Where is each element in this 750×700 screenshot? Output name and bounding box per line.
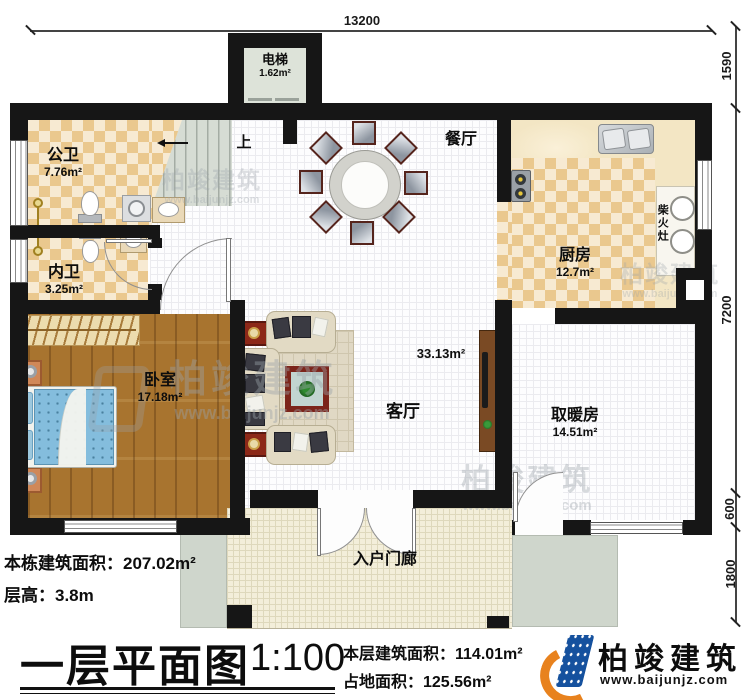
wood-stove-burner [670, 229, 695, 254]
title-underline [20, 687, 335, 690]
wall [230, 300, 245, 535]
room-area: 17.18m² [120, 390, 200, 404]
room-name: 内卫 [31, 263, 97, 282]
sink-basin [158, 202, 179, 217]
window [64, 520, 177, 533]
sofa-cushion [244, 353, 266, 372]
dining-chair [299, 170, 323, 194]
side-table-lamp [248, 438, 260, 450]
sink-bowl [627, 128, 652, 151]
drawing-scale: 1:100 [250, 637, 345, 680]
entry-door-leaf [412, 508, 416, 556]
cabinet-plant [483, 420, 492, 429]
kitchen-floor-tiles [512, 158, 655, 308]
stairs-up-label: 上 [233, 134, 255, 152]
elevator-wall [228, 33, 244, 120]
stairs-direction-line [164, 142, 188, 144]
stove-burner [515, 188, 526, 199]
wall [683, 520, 712, 535]
coffee-table-plant [299, 381, 315, 397]
pipe-valve [33, 198, 43, 208]
logo-swoosh [533, 639, 608, 700]
room-label-dining: 餐厅 [430, 130, 492, 149]
entry-step [180, 533, 227, 628]
bedroom-door-leaf [226, 238, 231, 302]
window [697, 160, 712, 230]
room-label-bedroom: 卧室 17.18m² [120, 371, 200, 405]
room-name: 卧室 [120, 371, 200, 390]
wall [250, 490, 318, 508]
note-floor-height: 层高：3.8m [4, 581, 94, 606]
sofa-cushion [309, 431, 329, 453]
room-name: 厨房 [542, 246, 608, 265]
dimension-line-top [30, 30, 712, 32]
pipe-valve [33, 246, 43, 256]
room-label-living: 客厅 [370, 402, 436, 422]
porch-pillar [227, 605, 252, 628]
side-table-lamp [248, 327, 260, 339]
floor-plan: 柏竣建筑 www.baijunjz.com 柏竣建筑 www.baijunjz.… [0, 0, 750, 700]
note-total-area: 本栋建筑面积：207.02m² [4, 549, 196, 574]
tv-icon [482, 352, 488, 408]
side-step [512, 535, 618, 627]
room-label-heating: 取暖房 14.51m² [540, 406, 610, 440]
wall [10, 300, 160, 314]
room-name: 入户门廊 [340, 550, 430, 569]
sofa-cushion [272, 317, 292, 339]
entry-door-leaf [317, 508, 321, 556]
dimension-right-value: 7200 [720, 280, 734, 340]
room-label-elevator: 电梯 1.62m² [244, 52, 306, 80]
room-area: 3.25m² [31, 282, 97, 296]
bath-door-leaf [106, 239, 152, 243]
dining-chair [350, 221, 374, 245]
sofa-cushion [292, 316, 311, 338]
room-name: 柴火灶 [655, 204, 668, 243]
stove-burner [515, 174, 526, 185]
title-underline [20, 693, 335, 694]
room-area: 7.76m² [30, 165, 96, 179]
sofa-cushion [274, 432, 291, 452]
room-label-kitchen: 厨房 12.7m² [542, 246, 608, 280]
dining-chair [404, 171, 428, 195]
window [10, 239, 28, 283]
window [10, 140, 28, 226]
label-wood-stove: 柴火灶 [655, 204, 671, 270]
wall [495, 300, 512, 508]
page-title: 一层平面图 [20, 630, 250, 694]
window [590, 522, 683, 534]
toilet-bowl [81, 191, 99, 216]
room-name: 公卫 [30, 146, 96, 165]
wall [497, 120, 511, 202]
room-label-public-bath: 公卫 7.76m² [30, 146, 96, 180]
heating-door-leaf [513, 472, 518, 522]
wall [10, 225, 160, 238]
brand-url: www.baijunjz.com [600, 672, 748, 687]
wall [10, 103, 712, 120]
stairs-up-text: 上 [233, 134, 255, 152]
wood-stove-burner [670, 196, 695, 221]
toilet-bowl [82, 240, 99, 263]
note-floor-area: 本层建筑面积：114.01m² [343, 640, 523, 664]
elevator-door-line [248, 98, 272, 101]
room-label-porch: 入户门廊 [340, 550, 430, 569]
stairs-arrow-icon [157, 139, 165, 147]
room-name: 餐厅 [430, 130, 492, 149]
dimension-top-value: 13200 [322, 13, 402, 28]
porch-pillar [487, 616, 509, 628]
sofa-cushion [245, 374, 265, 393]
note-footprint-area: 占地面积：125.56m² [343, 668, 492, 692]
room-area: 33.13m² [408, 346, 474, 362]
sink-bowl [602, 128, 627, 151]
wardrobe-rail [24, 329, 136, 331]
room-label-living-area: 33.13m² [408, 346, 474, 362]
room-area: 14.51m² [540, 425, 610, 439]
kitchen-floor-tiles [497, 200, 512, 300]
elevator-door-line [275, 98, 299, 101]
heating-door-opening [515, 520, 563, 535]
wall [283, 120, 297, 144]
room-name: 客厅 [370, 402, 436, 422]
elevator-wall [306, 33, 322, 120]
wall [563, 520, 591, 535]
room-name: 取暖房 [540, 406, 610, 425]
room-name: 电梯 [244, 52, 306, 68]
room-area: 1.62m² [244, 68, 306, 80]
entry-door-opening [318, 490, 413, 508]
sofa-cushion [245, 412, 265, 426]
dimension-right-value: 1590 [720, 36, 734, 96]
room-area: 12.7m² [542, 265, 608, 279]
dining-chair [352, 121, 376, 145]
brand-logo-icon [540, 633, 596, 695]
dimension-right-value: 1800 [724, 544, 738, 604]
dining-table-top [341, 161, 389, 209]
washing-machine-drum [128, 200, 145, 217]
wall-niche [686, 280, 704, 300]
room-label-private-bath: 内卫 3.25m² [31, 263, 97, 297]
sofa-pillow [292, 432, 309, 452]
sofa-pillow [245, 395, 265, 413]
dimension-right-value: 600 [723, 479, 737, 539]
